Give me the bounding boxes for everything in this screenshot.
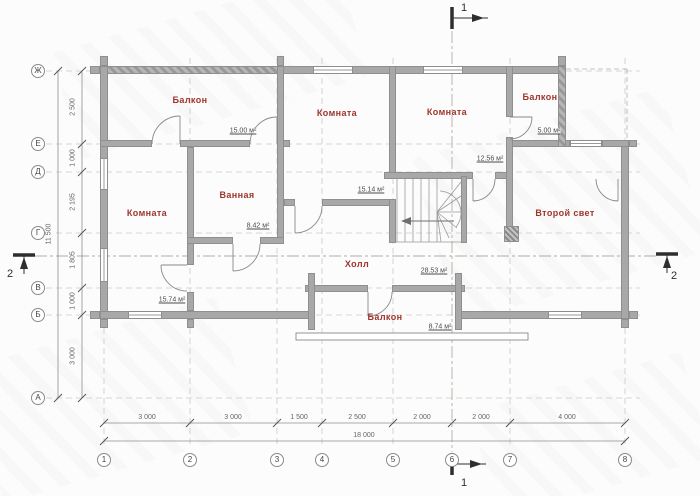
axis-row-zh: Ж — [31, 64, 45, 78]
dim-row-2: 1 000 — [70, 147, 77, 169]
dim-col-6: 2 000 — [470, 414, 492, 421]
dim-col-1: 3 000 — [136, 414, 158, 421]
staircase — [396, 179, 461, 242]
axis-column-2: 2 — [183, 453, 197, 467]
dim-row-1: 2 500 — [70, 96, 77, 118]
dim-col-2: 3 000 — [222, 414, 244, 421]
dim-row-3: 2 195 — [70, 191, 77, 213]
axis-column-8: 8 — [618, 453, 632, 467]
room-area-bathroom: 8.42 м² — [247, 223, 270, 230]
axis-row-e: Е — [31, 137, 45, 151]
room-area-room-left: 15.74 м² — [159, 297, 186, 304]
axis-column-6: 6 — [445, 453, 459, 467]
section-markers — [13, 7, 678, 475]
room-label-balcony-top-left: Балкон — [173, 95, 208, 105]
room-label-room-right-top: Комната — [427, 107, 467, 117]
floor-plan-canvas: Балкон 15.00 м² Комната 15.14 м² Комната… — [0, 0, 700, 496]
drawing-overlay — [0, 0, 700, 496]
axis-column-7: 7 — [503, 453, 517, 467]
section-2-label-left: 2 — [7, 268, 13, 280]
room-area-hall: 28.53 м² — [421, 268, 448, 275]
dim-total-width: 18 000 — [351, 432, 376, 439]
dim-row-6: 3 000 — [70, 345, 77, 367]
axis-column-4: 4 — [315, 453, 329, 467]
dim-row-4: 1 805 — [70, 249, 77, 271]
room-label-bathroom: Ванная — [219, 190, 254, 200]
stair-direction-arrow — [401, 217, 454, 225]
dim-col-5: 2 000 — [411, 414, 433, 421]
room-area-balcony-bottom: 8.74 м² — [429, 324, 452, 331]
dim-col-4: 2 500 — [346, 414, 368, 421]
balcony-railing — [296, 333, 528, 340]
dimension-ticks — [54, 67, 629, 445]
axis-column-3: 3 — [270, 453, 284, 467]
room-area-room-mid-top: 15.14 м² — [358, 187, 385, 194]
axis-column-5: 5 — [386, 453, 400, 467]
axis-row-a: А — [31, 391, 45, 405]
section-1-label-bottom: 1 — [461, 477, 467, 489]
section-1-label-top: 1 — [461, 2, 467, 14]
dim-row-5: 1 000 — [70, 290, 77, 312]
room-area-room-right-top: 12.56 м² — [477, 156, 504, 163]
room-label-room-mid-top: Комната — [317, 108, 357, 118]
dim-total-height: 11 500 — [46, 222, 53, 247]
room-label-hall: Холл — [345, 259, 369, 269]
room-label-room-left: Комната — [127, 208, 167, 218]
room-label-second-light: Второй свет — [535, 208, 594, 218]
dim-col-7: 4 000 — [556, 414, 578, 421]
room-label-balcony-top-right: Балкон — [523, 92, 558, 102]
axis-row-b: Б — [31, 308, 45, 322]
axis-row-d: Д — [31, 165, 45, 179]
room-label-balcony-bottom: Балкон — [368, 312, 403, 322]
dim-col-3: 1 500 — [288, 414, 310, 421]
axis-column-1: 1 — [97, 453, 111, 467]
dimension-lines — [58, 71, 625, 441]
axis-row-g: Г — [31, 226, 45, 240]
room-area-balcony-top-right: 5.00 м² — [538, 128, 561, 135]
axis-row-v: В — [31, 281, 45, 295]
room-area-balcony-top-left: 15.00 м² — [230, 128, 257, 135]
section-2-label-right: 2 — [671, 270, 677, 282]
